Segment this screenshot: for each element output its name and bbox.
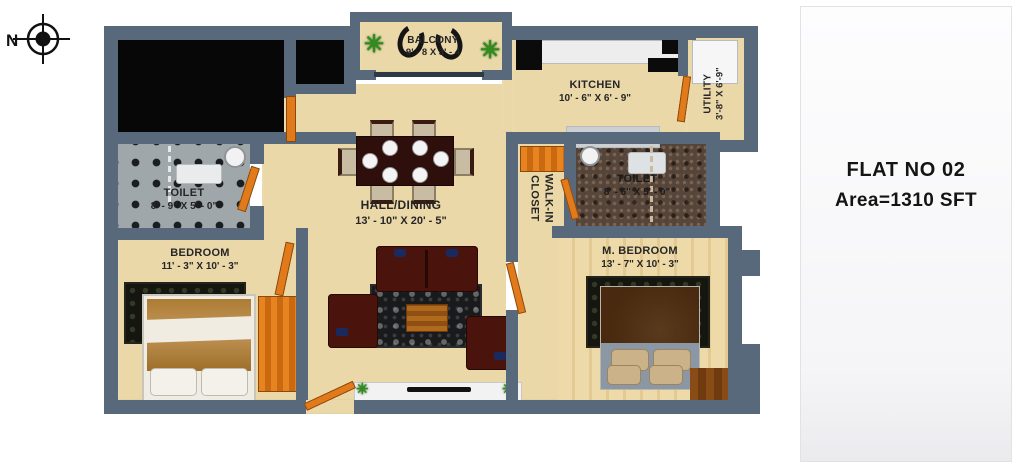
wash-basin	[580, 146, 600, 166]
wall	[506, 144, 518, 262]
room-dims: 3'-8" X 6'-9"	[714, 49, 726, 139]
wall	[104, 26, 352, 40]
wall	[706, 140, 720, 238]
door	[286, 96, 296, 142]
wall	[104, 400, 756, 414]
flat-area: Area=1310 SFT	[801, 190, 1011, 212]
toilet-sink	[176, 164, 222, 184]
bed-pillow	[201, 368, 248, 396]
toilet-sink	[628, 152, 666, 174]
compass: N	[0, 4, 80, 76]
wash-basin	[224, 146, 246, 168]
kitchen-appliance	[662, 40, 678, 54]
wall	[506, 132, 576, 144]
wall	[104, 228, 264, 240]
room-dims: 13' - 7" X 10' - 3"	[574, 258, 706, 271]
room-dims: 8' - 6" X 5' - 0"	[582, 186, 692, 199]
bed-pillow	[649, 365, 683, 385]
wall	[284, 40, 296, 98]
flat-number: FLAT NO 02	[801, 159, 1011, 182]
wall	[482, 70, 512, 80]
wall	[678, 40, 688, 76]
plant-icon: ✳	[364, 30, 384, 59]
wall	[744, 26, 758, 152]
sofa	[376, 246, 478, 292]
wall	[296, 228, 308, 412]
bed-blanket	[601, 287, 699, 349]
dining-chair	[454, 148, 474, 176]
dining-table	[356, 136, 454, 186]
room-name: TOILET	[582, 172, 692, 186]
coffee-table	[406, 304, 448, 332]
wall	[510, 26, 696, 40]
compass-icon	[12, 8, 72, 68]
tv-console	[354, 382, 522, 402]
walk-in-closet-label: WALK-IN CLOSET	[527, 161, 556, 235]
room-name: KITCHEN	[540, 78, 650, 92]
toilet-left-label: TOILET 8' - 9" X 5' - 0"	[134, 186, 234, 213]
sliding-door	[374, 72, 484, 77]
bed-pillow	[607, 365, 641, 385]
bedroom-label: BEDROOM 11' - 3" X 10' - 3"	[140, 246, 260, 273]
tv	[407, 387, 471, 392]
dining-chair	[338, 148, 358, 176]
armchair	[328, 294, 378, 348]
wall	[104, 26, 118, 414]
room-name: BEDROOM	[140, 246, 260, 260]
wall	[104, 132, 356, 144]
room-dims: 11' - 3" X 10' - 3"	[140, 260, 260, 273]
master-bed	[600, 286, 700, 390]
room-dims: 10' - 6" X 6' - 9"	[540, 92, 650, 105]
room-dims: 9' - 8 X 3' - 4	[388, 47, 478, 59]
void-area-large	[118, 40, 284, 132]
wall	[742, 250, 760, 276]
wall	[576, 132, 720, 144]
bed-pillow	[150, 368, 197, 396]
kitchen-label: KITCHEN 10' - 6" X 6' - 9"	[540, 78, 650, 105]
bed-sheet	[146, 316, 252, 343]
room-name: TOILET	[134, 186, 234, 200]
wall	[502, 12, 512, 78]
room-name: BALCONY	[388, 34, 478, 47]
wall	[344, 26, 356, 94]
room-name: M. BEDROOM	[574, 244, 706, 258]
hall-dining-label: HALL/DINING 13' - 10" X 20' - 5"	[336, 198, 466, 228]
room-name: UTILITY	[701, 49, 714, 139]
bed	[142, 294, 256, 402]
wall	[250, 132, 264, 164]
info-panel-text: FLAT NO 02 Area=1310 SFT	[801, 159, 1011, 212]
wall	[352, 70, 376, 80]
wall	[506, 310, 518, 400]
room-dims: 8' - 9" X 5' - 0"	[134, 200, 234, 213]
info-panel: FLAT NO 02 Area=1310 SFT	[800, 6, 1012, 462]
toilet-right-label: TOILET 8' - 6" X 5' - 0"	[582, 172, 692, 199]
kitchen-sink-dark	[648, 58, 678, 72]
master-bedroom-label: M. BEDROOM 13' - 7" X 10' - 3"	[574, 244, 706, 271]
floorplan-canvas: N ✳ ✳	[0, 0, 1024, 472]
room-name: WALK-IN CLOSET	[528, 174, 554, 223]
plant-icon: ✳	[480, 36, 500, 65]
plant-icon: ✳	[356, 380, 369, 398]
void-area-small	[296, 38, 344, 84]
wall	[552, 226, 724, 238]
wall	[350, 12, 512, 22]
balcony-label: BALCONY 9' - 8 X 3' - 4	[388, 34, 478, 59]
room-name: HALL/DINING	[336, 198, 466, 214]
kitchen-stove	[516, 40, 542, 70]
utility-label: UTILITY 3'-8" X 6'-9"	[701, 49, 726, 139]
room-dims: 13' - 10" X 20' - 5"	[336, 214, 466, 228]
wall	[728, 238, 742, 412]
